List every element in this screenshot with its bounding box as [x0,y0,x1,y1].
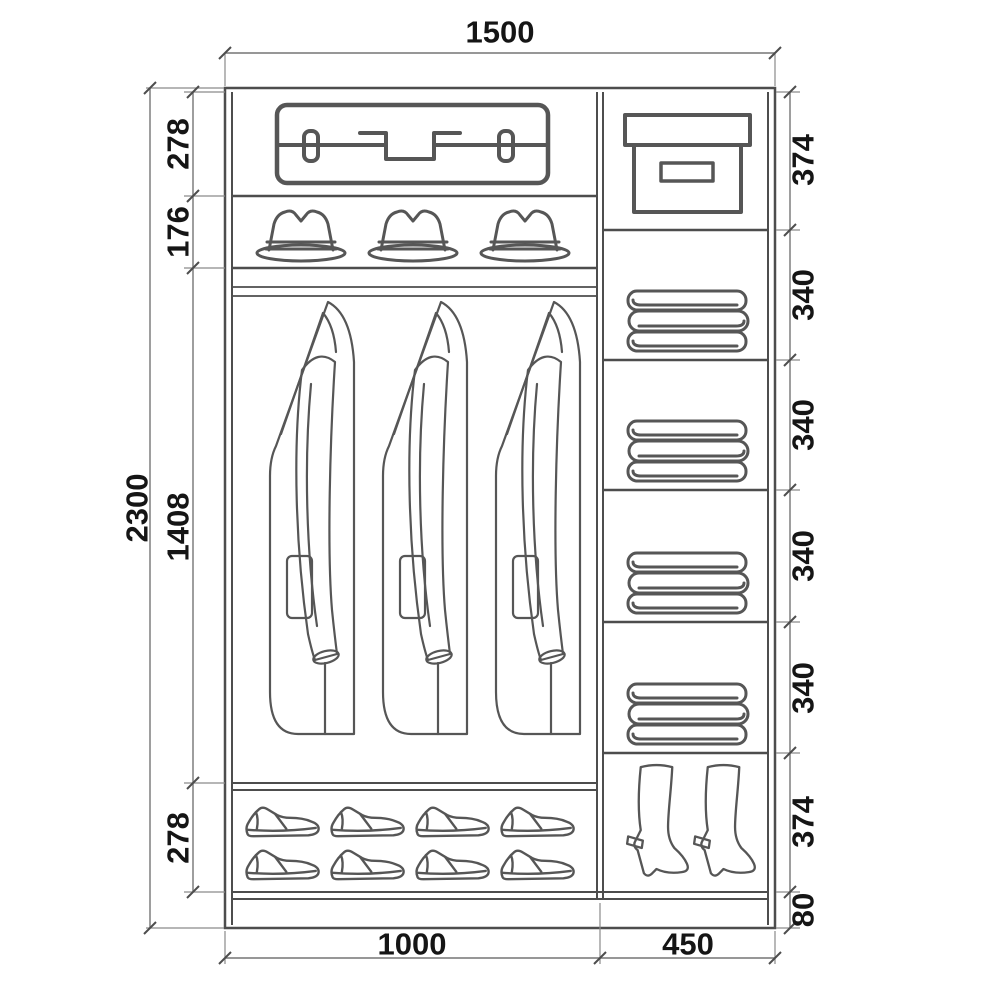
folded-blanket-icon [628,421,748,481]
left-section-2-label: 176 [161,206,196,258]
cabinet-contents [246,105,754,879]
high-heel-boot-icon [694,765,755,876]
dress-shoe-icon [501,808,573,837]
dress-shoe-icon [416,808,488,837]
total-height-label: 2300 [120,474,155,543]
dimension-lines [150,53,790,958]
right-section-1-label: 374 [786,133,821,185]
total-width-label: 1500 [466,15,535,50]
hanging-coat-icon [270,302,354,734]
hanging-coat-icon [496,302,580,734]
right-column-width-label: 450 [662,927,714,962]
storage-box-icon [625,115,750,212]
dress-shoe-icon [246,808,318,837]
hanging-coat-icon [383,302,467,734]
dress-shoe-icon [501,851,573,880]
left-column-width-label: 1000 [378,927,447,962]
extension-lines [146,53,800,964]
dress-shoe-icon [331,851,403,880]
wardrobe-dimension-diagram: 1500 2300 278 176 1408 278 374 340 340 3… [0,0,1000,1000]
right-section-2-label: 340 [786,269,821,321]
suitcase-icon [277,105,548,183]
high-heel-boot-icon [627,765,688,876]
hanging-rail [232,287,597,296]
fedora-hat-icon [369,211,457,261]
folded-blanket-icon [628,684,748,744]
left-section-3-label: 1408 [161,493,196,562]
folded-blanket-icon [628,291,748,351]
right-section-6-label: 374 [786,795,821,847]
left-section-1-label: 278 [161,118,196,170]
fedora-hat-icon [257,211,345,261]
fedora-hat-icon [481,211,569,261]
diagram-svg: 1500 2300 278 176 1408 278 374 340 340 3… [0,0,1000,1000]
plinth-lines [232,892,768,899]
right-section-3-label: 340 [786,399,821,451]
dress-shoe-icon [416,851,488,880]
right-section-4-label: 340 [786,530,821,582]
center-divider [597,92,603,899]
right-section-7-label: 80 [786,893,821,927]
dress-shoe-icon [246,851,318,880]
folded-blanket-icon [628,553,748,613]
left-section-4-label: 278 [161,812,196,864]
dress-shoe-icon [331,808,403,837]
shelf-above-shoes [232,783,597,790]
right-section-5-label: 340 [786,662,821,714]
